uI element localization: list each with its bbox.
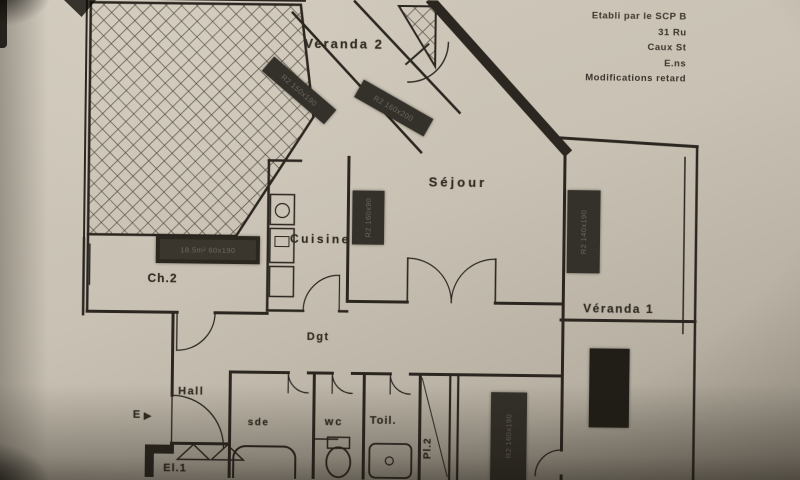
room-label-wc: wc <box>325 416 344 428</box>
room-label-veranda1: Véranda 1 <box>583 301 654 316</box>
toilet-bowl <box>326 447 350 477</box>
bathtub <box>233 446 296 480</box>
sejour-double-doors <box>347 257 564 304</box>
shower-tray <box>369 444 411 479</box>
entrance-arrow-icon: ► <box>141 409 154 420</box>
bathroom-fixtures <box>233 436 412 480</box>
door-arc <box>332 373 352 393</box>
dimension-sticker: 18.5m² 60x190 <box>156 235 260 264</box>
entrance-door-arc <box>171 395 224 448</box>
door-arc <box>390 374 410 394</box>
room-label-sde: sde <box>248 417 270 428</box>
door-arc <box>535 450 561 476</box>
dimension-sticker: R2 160x190 <box>490 392 527 480</box>
entrance-marker: E ► <box>133 409 154 421</box>
room-label-dgt: Dgt <box>307 331 330 343</box>
room-label-ch2: Ch.2 <box>147 271 177 285</box>
dimension-sticker: R2 140x190 <box>567 190 601 273</box>
entrance-label: E <box>133 409 140 421</box>
room-label-pl2: Pl.2 <box>422 437 433 459</box>
placard-diagonal <box>421 378 448 476</box>
title-line: Modifications retard <box>456 69 686 87</box>
room-label-sejour: Séjour <box>429 174 488 190</box>
room-label-hall: Hall <box>178 385 204 397</box>
drain <box>385 457 393 465</box>
room-label-veranda2: Veranda 2 <box>304 36 384 52</box>
floorplan-photo: R2 150x190 R2 160x200 R2 160x90 18.5m² 6… <box>0 0 800 480</box>
door-arc <box>177 312 215 350</box>
door-arc <box>288 373 308 393</box>
dimension-sticker <box>589 348 630 427</box>
door-jamb <box>145 445 153 477</box>
room-label-toil: Toil. <box>370 415 397 427</box>
room-label-cuisine: Cuisine <box>290 232 351 247</box>
room-label-el1: El.1 <box>163 462 187 474</box>
dimension-sticker: R2 160x90 <box>352 190 385 244</box>
plan-title-block: Etabli par le SCP B 31 Ru Caux St E.ns M… <box>456 7 687 87</box>
floorplan-drawing: R2 150x190 R2 160x200 R2 160x90 18.5m² 6… <box>0 0 800 480</box>
door-arc <box>303 275 339 311</box>
